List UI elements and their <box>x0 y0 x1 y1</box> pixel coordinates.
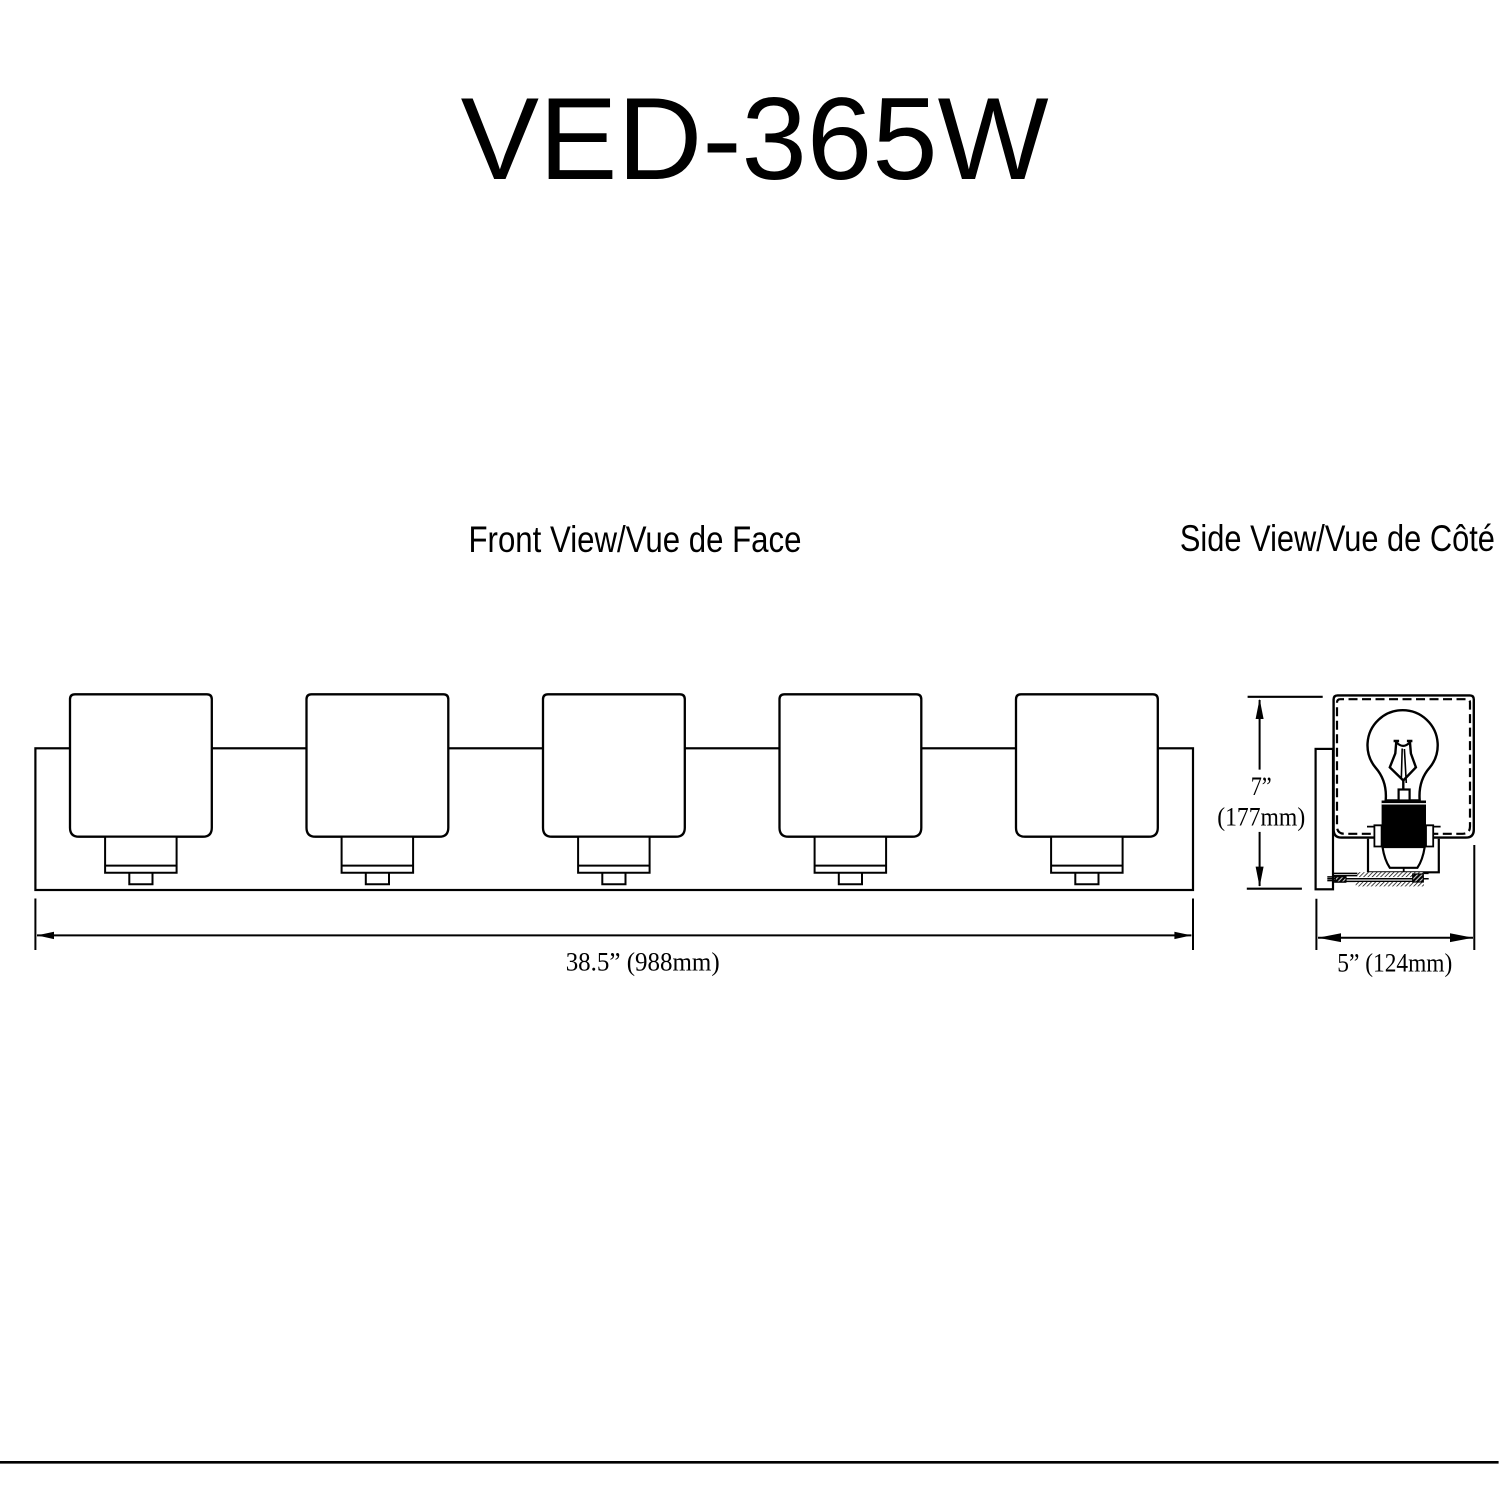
svg-text:38.5” (988mm): 38.5” (988mm) <box>566 948 720 977</box>
svg-text:(177mm): (177mm) <box>1217 803 1305 832</box>
svg-text:7”: 7” <box>1251 772 1272 801</box>
svg-text:VED-365W: VED-365W <box>461 73 1050 204</box>
svg-text:Side View/Vue de Côté: Side View/Vue de Côté <box>1180 518 1495 559</box>
svg-text:Front View/Vue de Face: Front View/Vue de Face <box>469 519 802 560</box>
svg-text:5” (124mm): 5” (124mm) <box>1337 949 1452 978</box>
